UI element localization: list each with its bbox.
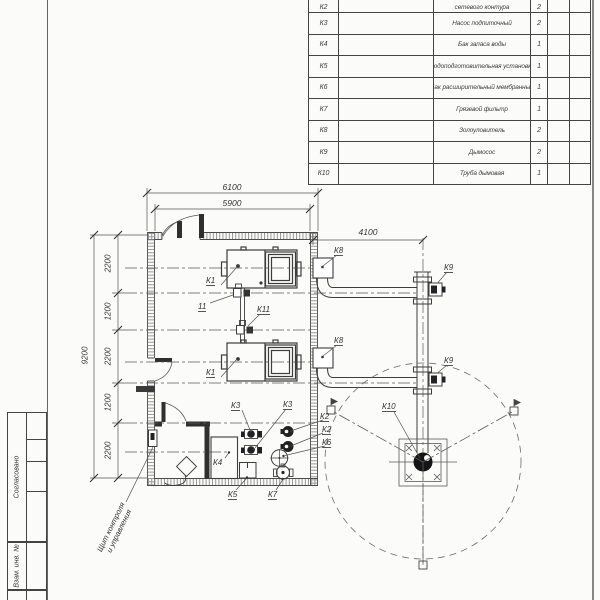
label-k4: К4 [213, 458, 222, 467]
dim-seg-2: 1200 [104, 300, 113, 324]
row-name: Насос подпиточный [434, 13, 531, 34]
dim-seg-5: 2200 [104, 439, 113, 463]
spec-table: К2 сетевого контура 2 К3 Насос подпиточн… [308, 0, 591, 185]
table-row: К4 Бак запаса воды 1 [309, 34, 590, 56]
stamp-replace-inv-label: Взам. инв. № [14, 544, 21, 587]
row-qty: 2 [531, 142, 548, 163]
table-row: К9 Дымосос 2 [309, 141, 590, 163]
row-pos: К2 [309, 0, 339, 12]
label-k6: К6 [322, 438, 331, 448]
dim-seg-3: 2200 [104, 345, 113, 369]
label-k8-bottom: К8 [334, 336, 343, 346]
row-pos: К9 [309, 142, 339, 163]
label-k2-bottom: К2 [322, 425, 331, 435]
row-qty: 1 [531, 35, 548, 56]
row-name: Золоуловитель [434, 121, 531, 142]
ash-collector-k8-top [313, 258, 333, 278]
table-row: К3 Насос подпиточный 2 [309, 12, 590, 34]
smoke-exhauster-k9-top [429, 283, 446, 296]
label-k3-right: К3 [283, 400, 292, 410]
label-valve-11: 11 [198, 302, 206, 312]
expansion-tank-k6 [271, 449, 289, 467]
dim-seg-4: 1200 [104, 391, 113, 415]
table-row: К10 Труба дымовая 1 [309, 163, 590, 185]
table-row: К2 сетевого контура 2 [309, 0, 590, 12]
row-pos: К8 [309, 121, 339, 142]
row-qty: 2 [531, 0, 548, 12]
row-pos: К3 [309, 13, 339, 34]
dim-overall-height: 9200 [81, 344, 90, 368]
row-qty: 1 [531, 164, 548, 185]
row-name: Бак расширительный мембранный [434, 78, 531, 99]
row-name: Водоподготовительная установка [434, 56, 531, 77]
label-k7: К7 [268, 490, 277, 500]
row-pos: К6 [309, 78, 339, 99]
label-k11: К11 [257, 305, 270, 315]
boiler-2 [222, 340, 302, 381]
water-treatment-k5 [240, 463, 257, 479]
label-k10: К10 [382, 402, 396, 412]
row-pos: К10 [309, 164, 339, 185]
label-k1-bottom: К1 [206, 368, 215, 378]
label-k1-top: К1 [206, 276, 215, 286]
table-row: К5 Водоподготовительная установка 1 [309, 55, 590, 77]
row-qty: 2 [531, 13, 548, 34]
control-panel [149, 430, 158, 447]
row-pos: К7 [309, 99, 339, 120]
dim-width-inner: 5900 [214, 198, 250, 208]
row-pos: К4 [309, 35, 339, 56]
row-qty: 2 [531, 121, 548, 142]
row-name: сетевого контура [434, 0, 531, 12]
stamp-agreed-box: Согласовано [7, 412, 47, 542]
filter-k7 [274, 464, 294, 479]
row-name: Дымосос [434, 142, 531, 163]
label-k8-top: К8 [334, 246, 343, 256]
row-pos: К5 [309, 56, 339, 77]
flue-ducts [317, 272, 432, 453]
door-arcs [155, 215, 199, 421]
stamp-replace-inv-box: Взам. инв. № [7, 542, 47, 590]
stamp-next-box [7, 590, 47, 600]
table-row: К6 Бак расширительный мембранный 1 [309, 77, 590, 99]
row-name: Труба дымовая [434, 164, 531, 185]
label-k3-left: К3 [231, 401, 240, 411]
dim-width-outer: 6100 [214, 182, 250, 192]
row-name: Грязевой фильтр [434, 99, 531, 120]
label-k2-top: К2 [320, 412, 329, 422]
boiler-1 [222, 247, 302, 288]
smoke-exhauster-k9-bottom [429, 373, 446, 386]
label-k9-bottom: К9 [444, 356, 453, 366]
row-qty: 1 [531, 99, 548, 120]
valve-11 [234, 284, 251, 297]
table-row: К8 Золоуловитель 2 [309, 120, 590, 142]
label-k9-top: К9 [444, 263, 453, 273]
stamp-agreed-label: Согласовано [14, 456, 21, 499]
dim-seg-1: 2200 [104, 252, 113, 276]
wall-stub [136, 386, 155, 392]
row-qty: 1 [531, 78, 548, 99]
row-name: Бак запаса воды [434, 35, 531, 56]
row-qty: 1 [531, 56, 548, 77]
drawing-sheet: К1 К1 11 К11 К3 К3 К2 К2 К6 К4 К5 К7 К8 … [0, 0, 600, 600]
ash-collector-k8-bottom [313, 348, 333, 368]
interior-walls [155, 214, 210, 479]
pump-k3-bottom [241, 446, 262, 455]
table-row: К7 Грязевой фильтр 1 [309, 98, 590, 120]
label-k5: К5 [228, 490, 237, 500]
dim-right-span: 4100 [350, 227, 386, 237]
